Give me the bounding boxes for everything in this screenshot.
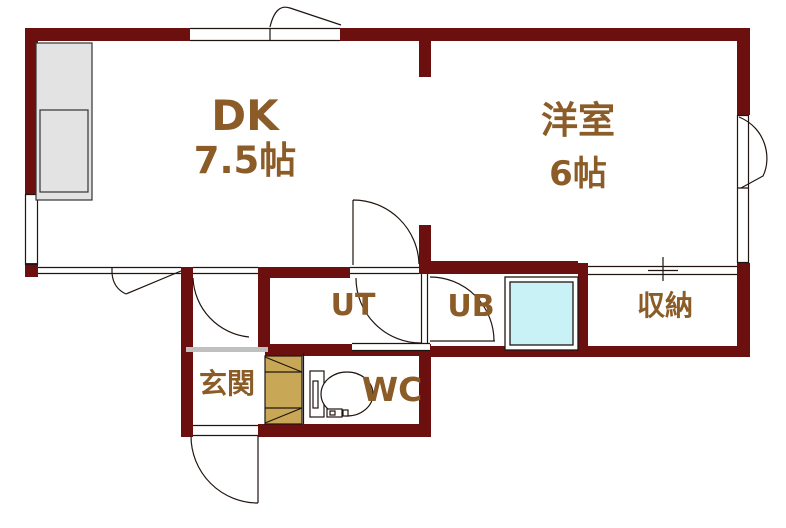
doorway-hall: [193, 268, 258, 274]
western-room-size-label: 6帖: [488, 155, 668, 194]
room-label-western-room: 洋室 6帖: [488, 100, 668, 194]
door-swing-entrance: [191, 436, 258, 503]
dk-size-label: 7.5帖: [150, 140, 340, 183]
room-label-unit-bath: UB: [444, 290, 498, 325]
sliding-door-storage: [588, 257, 737, 281]
bathtub: [505, 277, 578, 350]
floor-plan: DK 7.5帖 洋室 6帖 UT UB 収納 玄関 WC: [0, 0, 786, 528]
window-top-swing: [270, 7, 341, 27]
western-room-label: 洋室: [541, 99, 615, 142]
window-top: [190, 28, 340, 41]
wall-ut-ub-thin: [422, 274, 428, 344]
window-right-swing: [739, 117, 767, 188]
room-label-storage: 収納: [614, 290, 716, 322]
window-dk-bottom: [38, 267, 181, 274]
room-label-utility: UT: [322, 289, 384, 324]
kitchen-counter: [36, 43, 92, 200]
door-swing-dk: [353, 200, 419, 265]
doorway-dk-ut: [350, 268, 419, 274]
window-right: [737, 115, 749, 263]
door-dk-back: [112, 271, 181, 294]
window-left: [25, 194, 38, 265]
room-label-toilet: WC: [360, 371, 424, 409]
plan-linework: [0, 0, 786, 528]
ut-bottom-opening: [352, 343, 430, 351]
door-swing-hall: [193, 278, 249, 337]
doorway-entrance: [193, 426, 258, 436]
room-label-dining-kitchen: DK 7.5帖: [150, 92, 340, 183]
shoe-cabinet: [265, 356, 302, 424]
dk-label: DK: [211, 91, 278, 140]
room-label-entrance: 玄関: [190, 368, 264, 400]
